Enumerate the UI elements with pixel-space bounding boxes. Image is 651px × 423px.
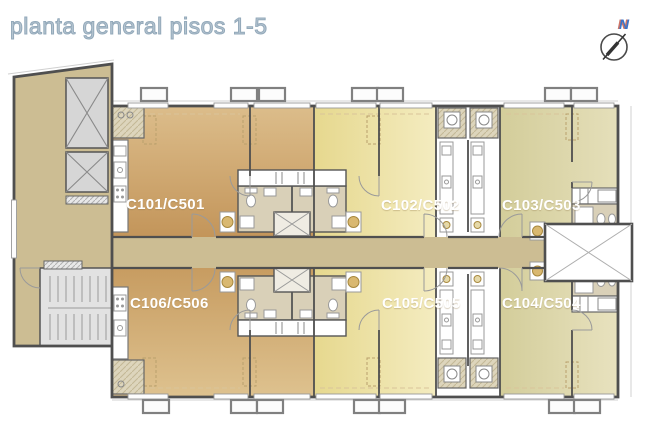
central-corridor [112,237,548,268]
north-indicator-icon [601,34,627,60]
shaft-vent [66,196,108,204]
stair-vent [44,261,82,269]
wardrobe-bottom [238,320,346,336]
apartment-label-c104: C104/C504 [502,295,581,312]
void-shaft [545,224,632,281]
stairwell [40,261,112,346]
apartment-label-c105: C105/C505 [382,295,461,312]
apartment-label-c101: C101/C501 [126,196,205,213]
floor-plan-page: planta general pisos 1-5 N C101/C501 C10… [0,0,651,423]
wardrobe-top [238,170,346,186]
north-label: N [619,16,629,32]
bathroom-block-bottom [238,268,346,336]
apartment-label-c103: C103/C503 [502,197,581,214]
apartment-label-c102: C102/C502 [381,197,460,214]
page-title: planta general pisos 1-5 [10,13,268,40]
apartment-label-c106: C106/C506 [130,295,209,312]
bathroom-block-top [238,170,346,236]
